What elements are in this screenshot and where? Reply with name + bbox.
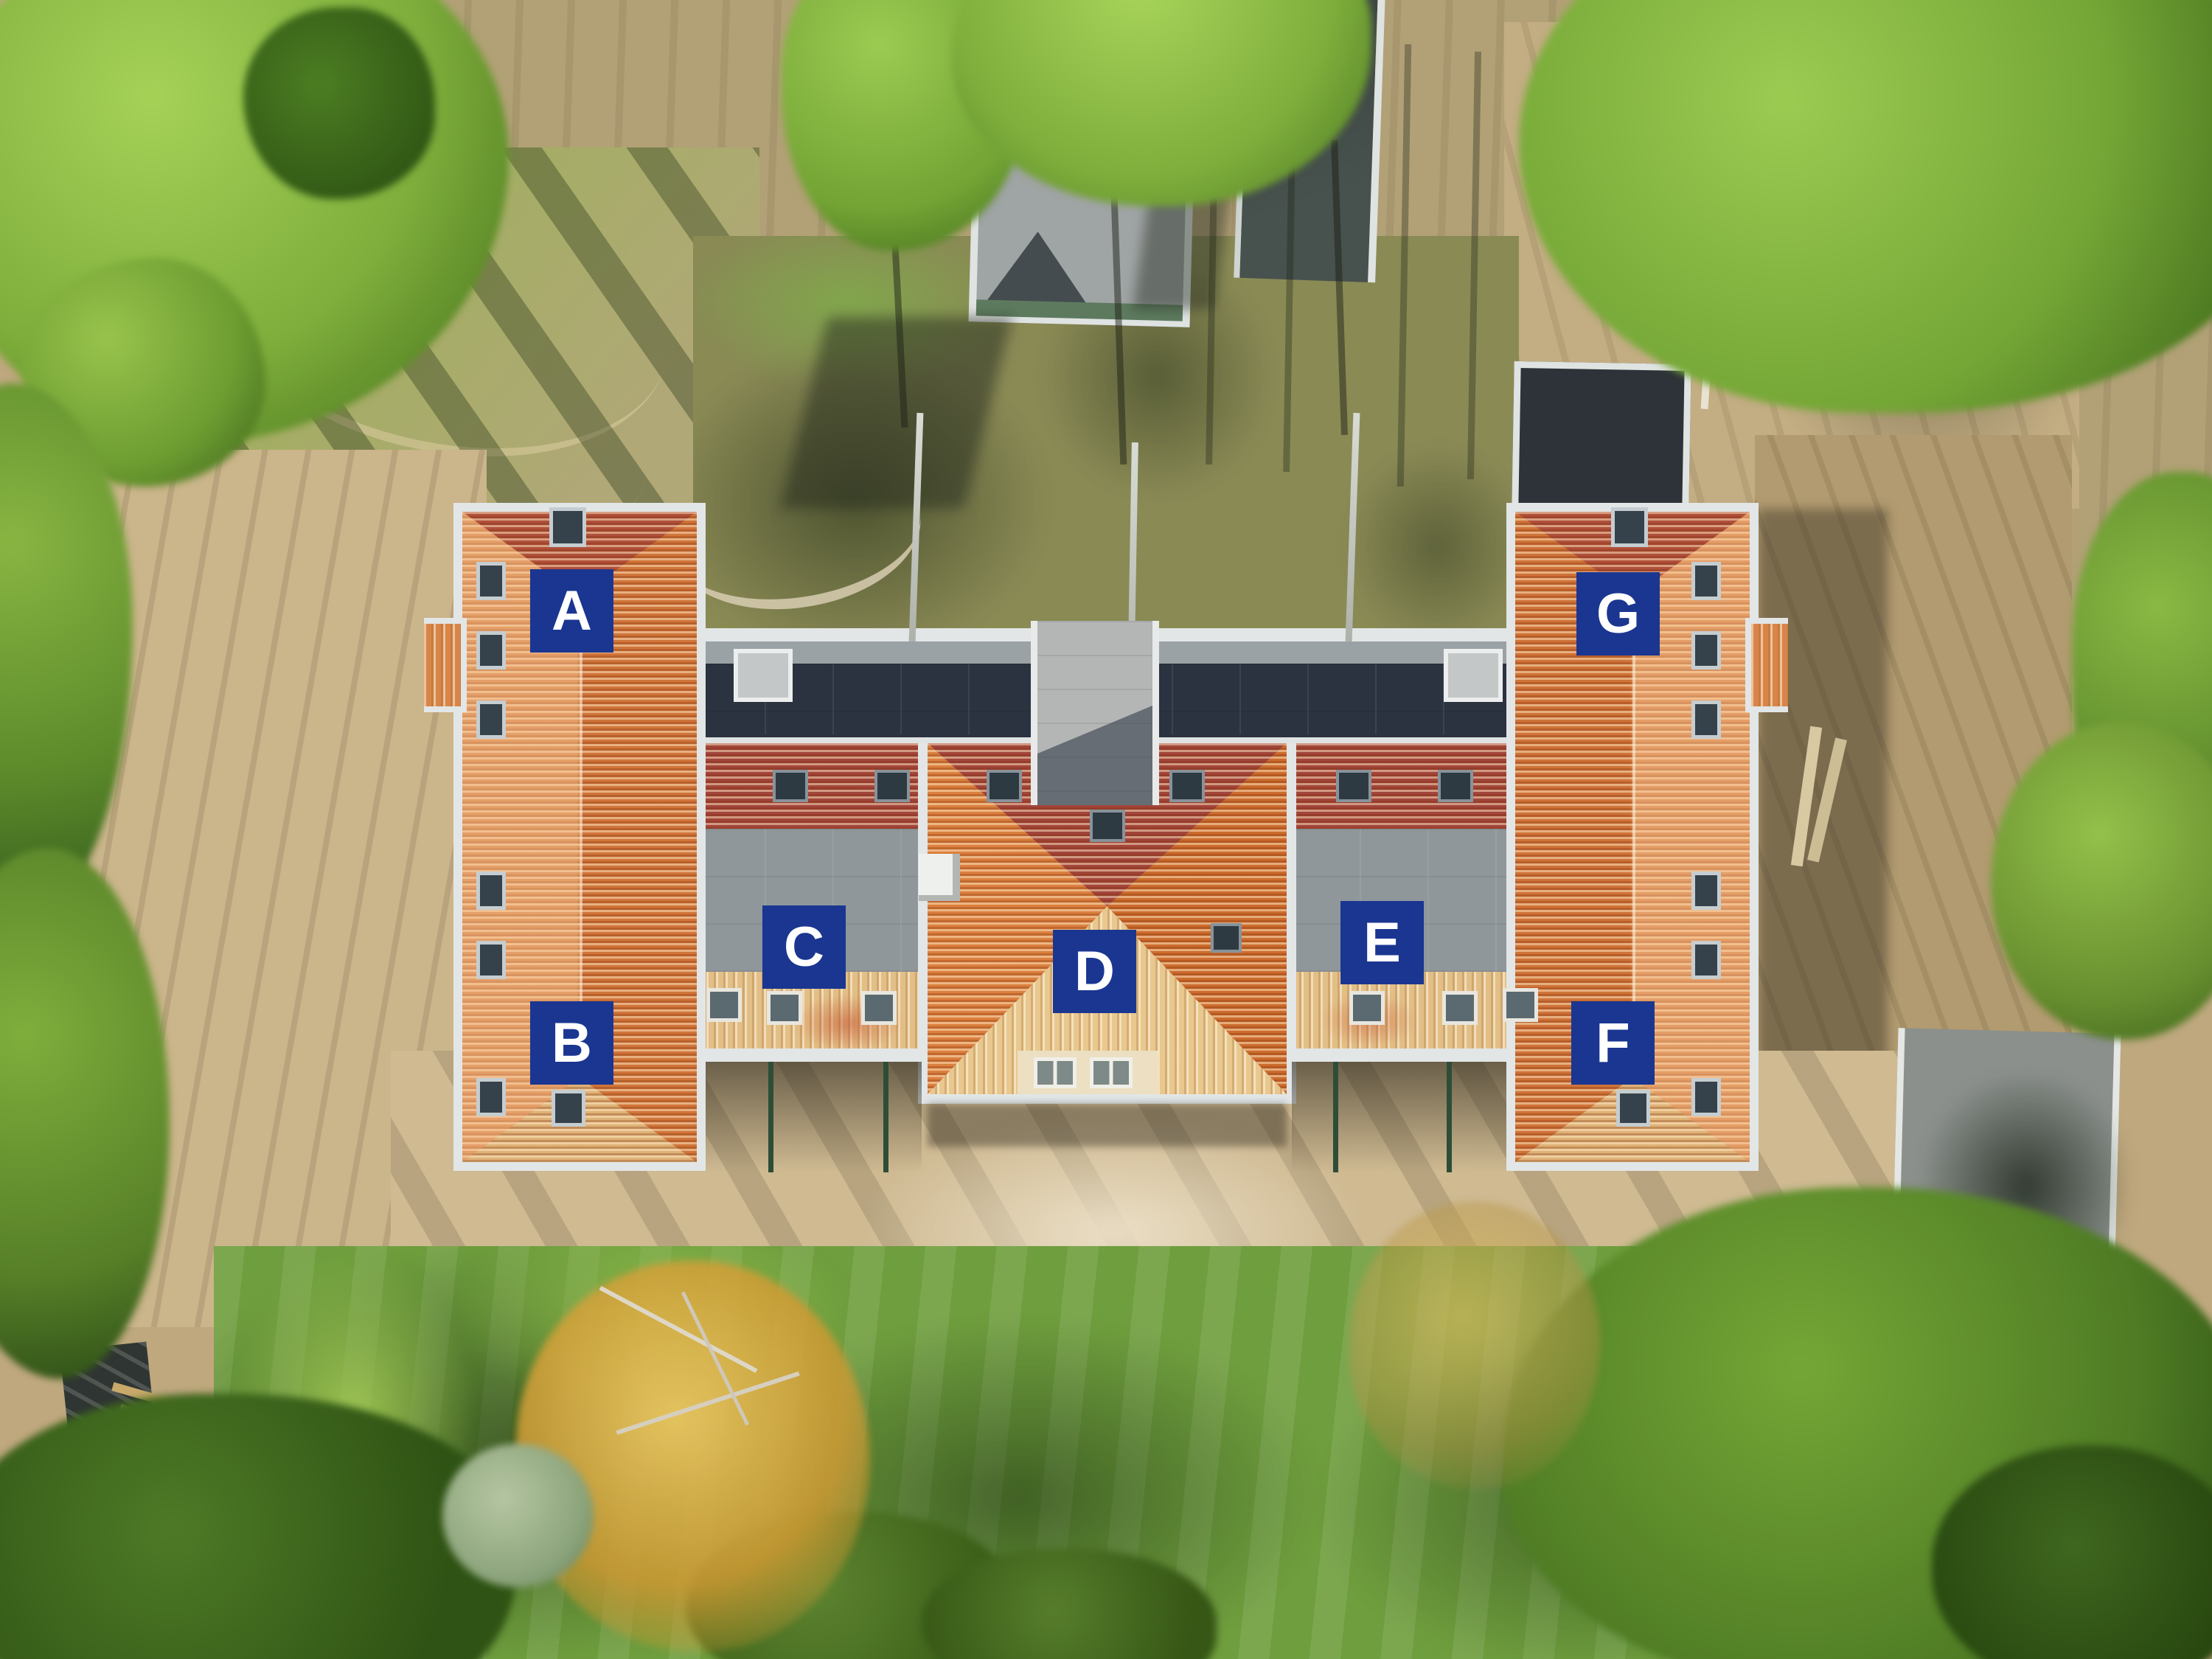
skylight [1691,941,1721,979]
sage-bush [442,1444,594,1587]
unit-label-e[interactable]: E [1340,901,1424,984]
d-roof-shaft [1031,621,1159,805]
unit-letter: D [1074,944,1115,1000]
d-white-chimney [919,854,960,901]
roof-window [1169,770,1205,802]
wing-gf-east-gable [1745,618,1788,712]
unit-letter: B [552,1015,592,1071]
courtyard-shadow [1342,442,1519,643]
unit-label-c[interactable]: C [762,905,846,989]
skylight [1691,700,1721,739]
d-north-roof-window [1090,810,1125,842]
carport-post [768,1062,773,1172]
autumn-tree [516,1261,870,1652]
d-cast-shadow [928,1104,1287,1147]
pine-tree [243,7,435,199]
row-c-eave [697,1048,922,1062]
row-e-eave [1292,1048,1517,1062]
carport-post [883,1062,888,1172]
roof-window [773,770,808,802]
dark-flat-box-top-right [1512,361,1691,512]
skylight [476,1078,506,1116]
shaft-shadow [1037,621,1152,805]
skylight [1691,631,1721,669]
roof-window [706,988,742,1022]
roof-window [987,770,1022,802]
skylight [1611,507,1648,547]
skylight [476,562,506,600]
unit-letter: A [552,583,592,639]
skylight [1616,1090,1650,1127]
carport-passage [1292,1062,1513,1172]
connector-skylight-box [1444,649,1503,702]
unit-label-f[interactable]: F [1571,1001,1655,1085]
skylight [1691,872,1721,910]
wing-gf-east-gable-roof [1751,624,1788,706]
skylight [476,872,506,910]
skylight [476,700,506,739]
wing-ab-west-gable-roof [424,624,461,706]
roof-window [1438,770,1473,802]
skylight [476,631,506,669]
d-east-roof-window [1211,923,1242,953]
roof-window [1503,988,1538,1022]
roof-window [767,991,802,1025]
roof-window [1336,770,1371,802]
skylight [476,941,506,979]
skylight [1691,562,1721,600]
carport-post [1333,1062,1338,1172]
aerial-photo: A B C D E F G [0,0,2212,1659]
roof-window [874,770,910,802]
unit-letter: F [1596,1015,1630,1071]
connector-skylight-box [734,649,793,702]
wing-ab-west-gable [424,618,467,712]
d-gable-window [1034,1057,1077,1088]
unit-letter: C [784,919,824,975]
unit-label-a[interactable]: A [530,569,613,653]
roof-window [861,991,897,1025]
unit-letter: G [1596,586,1640,642]
unit-label-d[interactable]: D [1053,930,1136,1013]
skylight [552,1090,585,1127]
unit-label-b[interactable]: B [530,1001,613,1085]
roof-window [1442,991,1478,1025]
unit-letter: E [1363,915,1401,971]
skylight [1691,1078,1721,1116]
unit-label-g[interactable]: G [1576,572,1660,655]
roof-window [1349,991,1385,1025]
carport-passage [700,1062,922,1172]
d-gable-window [1090,1057,1133,1088]
carport-post [1447,1062,1452,1172]
dry-golden-tree [1349,1202,1600,1489]
skylight [549,507,586,547]
